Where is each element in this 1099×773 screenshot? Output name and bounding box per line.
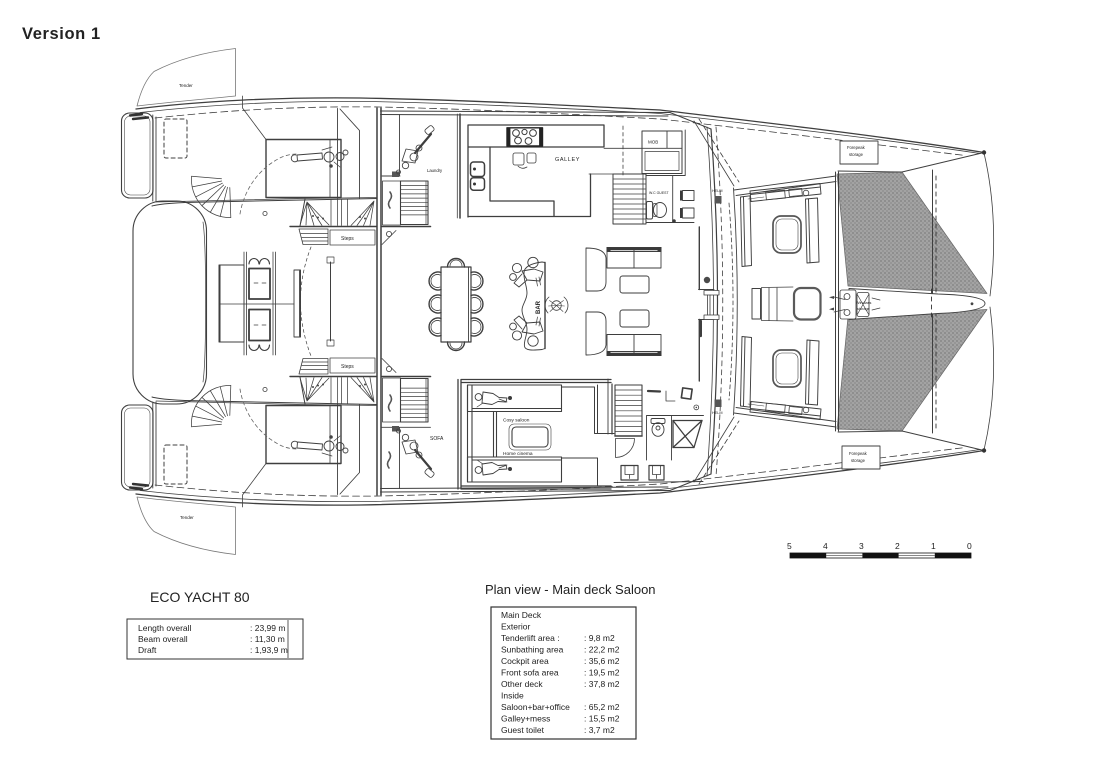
- svg-text:4: 4: [823, 541, 828, 551]
- svg-text:Cosy saloon: Cosy saloon: [503, 418, 530, 424]
- svg-text:: 3,7 m2: : 3,7 m2: [584, 725, 615, 735]
- svg-text:Sunbathing area: Sunbathing area: [501, 645, 564, 655]
- svg-text:Forepeak: Forepeak: [847, 145, 866, 150]
- svg-text:BAR: BAR: [536, 300, 542, 314]
- svg-text:Draft: Draft: [138, 645, 157, 655]
- svg-text:HELM: HELM: [712, 411, 723, 415]
- svg-text:ECO YACHT 80: ECO YACHT 80: [150, 589, 250, 605]
- svg-text:Inside: Inside: [501, 691, 524, 701]
- svg-text:1: 1: [931, 541, 936, 551]
- svg-text:Forepeak: Forepeak: [849, 451, 868, 456]
- svg-text:: 22,2 m2: : 22,2 m2: [584, 645, 620, 655]
- svg-text:Main Deck: Main Deck: [501, 610, 542, 620]
- svg-text:: 37,8 m2: : 37,8 m2: [584, 679, 620, 689]
- svg-text:storage: storage: [849, 152, 864, 157]
- svg-text:: 9,8 m2: : 9,8 m2: [584, 633, 615, 643]
- svg-text:: 65,2 m2: : 65,2 m2: [584, 702, 620, 712]
- svg-text:Front sofa area: Front sofa area: [501, 668, 559, 678]
- svg-text:GALLEY: GALLEY: [555, 157, 580, 163]
- svg-text:Home cinema: Home cinema: [503, 451, 533, 457]
- svg-text:Exterior: Exterior: [501, 622, 530, 632]
- svg-text:Steps: Steps: [341, 236, 354, 242]
- svg-text:: 1,93,9 m: : 1,93,9 m: [250, 645, 288, 655]
- svg-text:: 19,5 m2: : 19,5 m2: [584, 668, 620, 678]
- svg-text:Guest toilet: Guest toilet: [501, 725, 545, 735]
- svg-text:Version 1: Version 1: [22, 25, 101, 43]
- svg-text:storage: storage: [851, 458, 866, 463]
- svg-text:Beam overall: Beam overall: [138, 634, 188, 644]
- svg-text:: 23,99 m: : 23,99 m: [250, 623, 285, 633]
- svg-text:Other deck: Other deck: [501, 679, 543, 689]
- svg-text:MOB: MOB: [648, 140, 658, 145]
- svg-text:Tenderlift area :: Tenderlift area :: [501, 633, 560, 643]
- svg-text:SOFA: SOFA: [430, 436, 444, 442]
- svg-text:Steps: Steps: [341, 364, 354, 370]
- svg-text:0: 0: [967, 541, 972, 551]
- svg-text:: 11,30 m: : 11,30 m: [250, 634, 285, 644]
- svg-text:Tender: Tender: [180, 515, 194, 520]
- svg-text:2: 2: [895, 541, 900, 551]
- svg-text:HELM: HELM: [712, 189, 723, 193]
- svg-text:Length overall: Length overall: [138, 623, 192, 633]
- svg-text:Cockpit area: Cockpit area: [501, 656, 549, 666]
- svg-text:Tender: Tender: [179, 83, 193, 88]
- svg-text:3: 3: [859, 541, 864, 551]
- svg-text:Saloon+bar+office: Saloon+bar+office: [501, 702, 570, 712]
- svg-text:: 15,5 m2: : 15,5 m2: [584, 714, 620, 724]
- svg-text:Galley+mess: Galley+mess: [501, 714, 550, 724]
- svg-text:: 35,6 m2: : 35,6 m2: [584, 656, 620, 666]
- svg-text:Windlass: Windlass: [856, 301, 872, 305]
- svg-text:Plan view - Main deck Saloon: Plan view - Main deck Saloon: [485, 582, 656, 597]
- svg-text:W.C GUEST: W.C GUEST: [649, 191, 670, 195]
- svg-text:Laundry: Laundry: [427, 168, 443, 173]
- svg-text:storage: storage: [857, 307, 870, 311]
- svg-text:5: 5: [787, 541, 792, 551]
